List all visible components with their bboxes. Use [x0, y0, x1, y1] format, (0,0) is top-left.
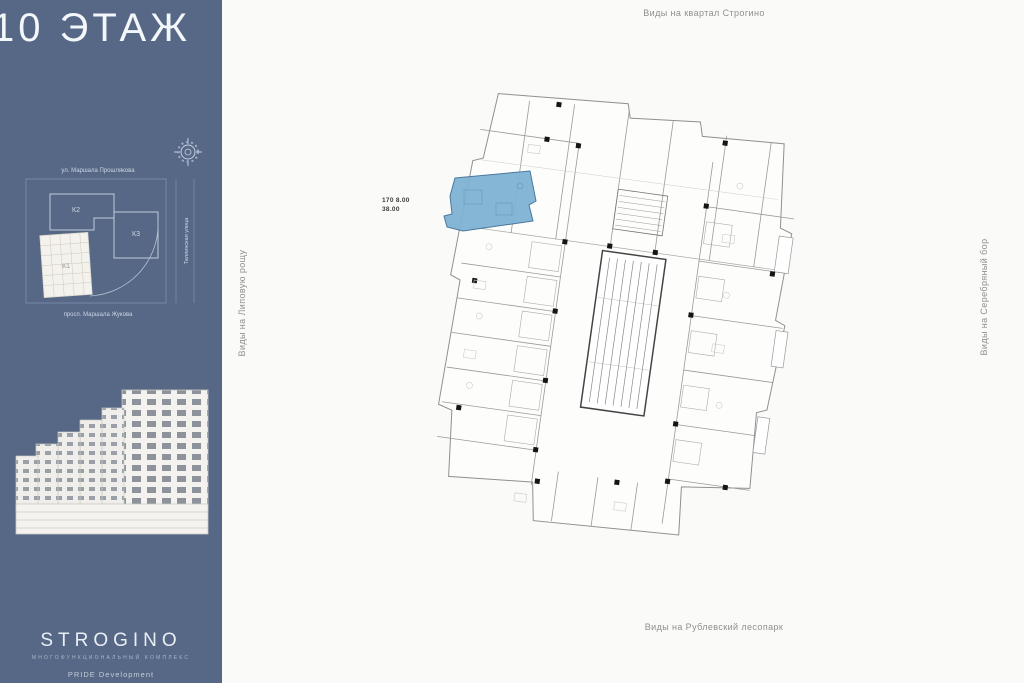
unit-callout-line1: 170 8.00 — [382, 196, 410, 205]
logo: STROGINO МНОГОФУНКЦИОНАЛЬНЫЙ КОМПЛЕКС PR… — [0, 630, 222, 679]
building-k2-outline — [50, 194, 114, 230]
building-k2-label: К2 — [72, 207, 80, 214]
logo-title: STROGINO — [0, 630, 222, 652]
street-label-bottom: просп. Маршала Жукова — [64, 312, 134, 318]
building-k1[interactable]: К1 — [40, 232, 92, 297]
building-elevation-image — [10, 386, 212, 538]
street-label-top: ул. Маршала Прошлякова — [61, 168, 135, 174]
building-k3-label: К3 — [132, 231, 140, 238]
building-k1-label: К1 — [62, 263, 71, 271]
floor-plan-drawing — [222, 0, 1024, 683]
street-label-right: Таллинская улица — [184, 217, 190, 265]
floor-title: 10 ЭТАЖ — [0, 6, 214, 51]
sidebar: 10 ЭТАЖ ул. Маршала Прошлякова — [0, 0, 222, 683]
unit-callout: 170 8.00 38.00 — [382, 196, 410, 214]
logo-subtitle: МНОГОФУНКЦИОНАЛЬНЫЙ КОМПЛЕКС — [0, 655, 222, 661]
logo-developer: PRIDE Development — [0, 670, 222, 679]
floor-plan-page: 10 ЭТАЖ ул. Маршала Прошлякова — [0, 0, 1024, 683]
highlighted-unit[interactable] — [444, 171, 536, 231]
plan-area: Виды на квартал Строгино Виды на Рублевс… — [222, 0, 1024, 683]
site-plan: ул. Маршала Прошлякова Таллинская улица … — [18, 160, 210, 332]
unit-callout-line2: 38.00 — [382, 205, 410, 214]
